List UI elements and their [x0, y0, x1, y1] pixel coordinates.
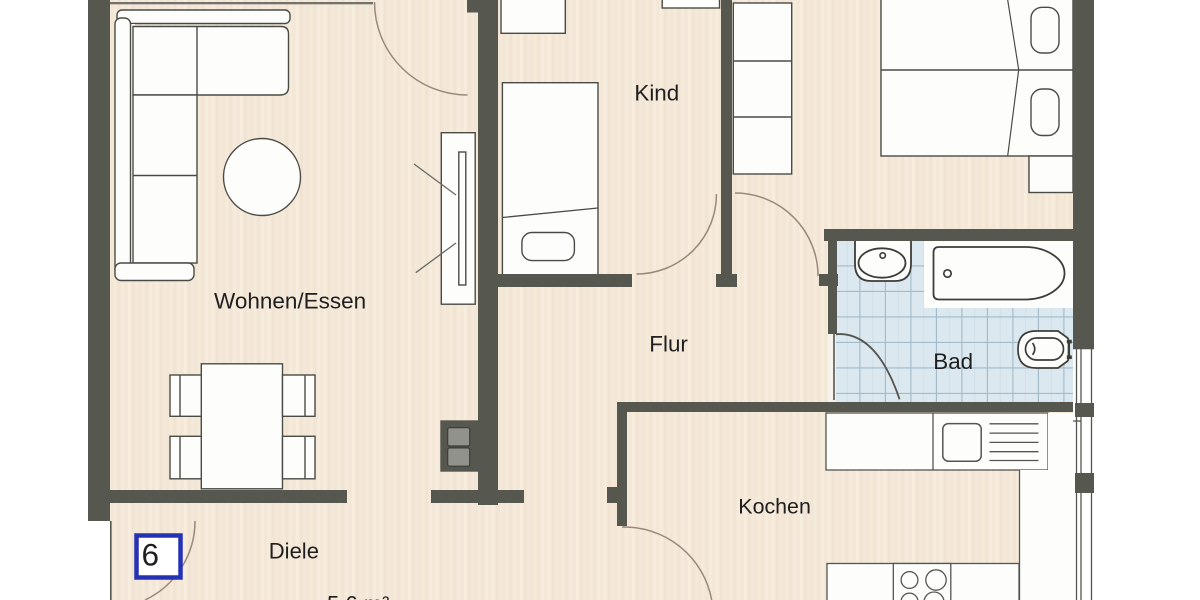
svg-text:Kochen: Kochen — [738, 495, 811, 519]
svg-text:5,6 m²: 5,6 m² — [327, 592, 389, 600]
svg-text:Diele: Diele — [269, 538, 319, 563]
svg-text:Flur: Flur — [649, 332, 688, 357]
svg-text:Kind: Kind — [634, 81, 679, 106]
svg-text:Wohnen/Essen: Wohnen/Essen — [214, 289, 366, 314]
svg-text:6: 6 — [142, 537, 160, 573]
svg-text:Bad: Bad — [933, 349, 973, 374]
